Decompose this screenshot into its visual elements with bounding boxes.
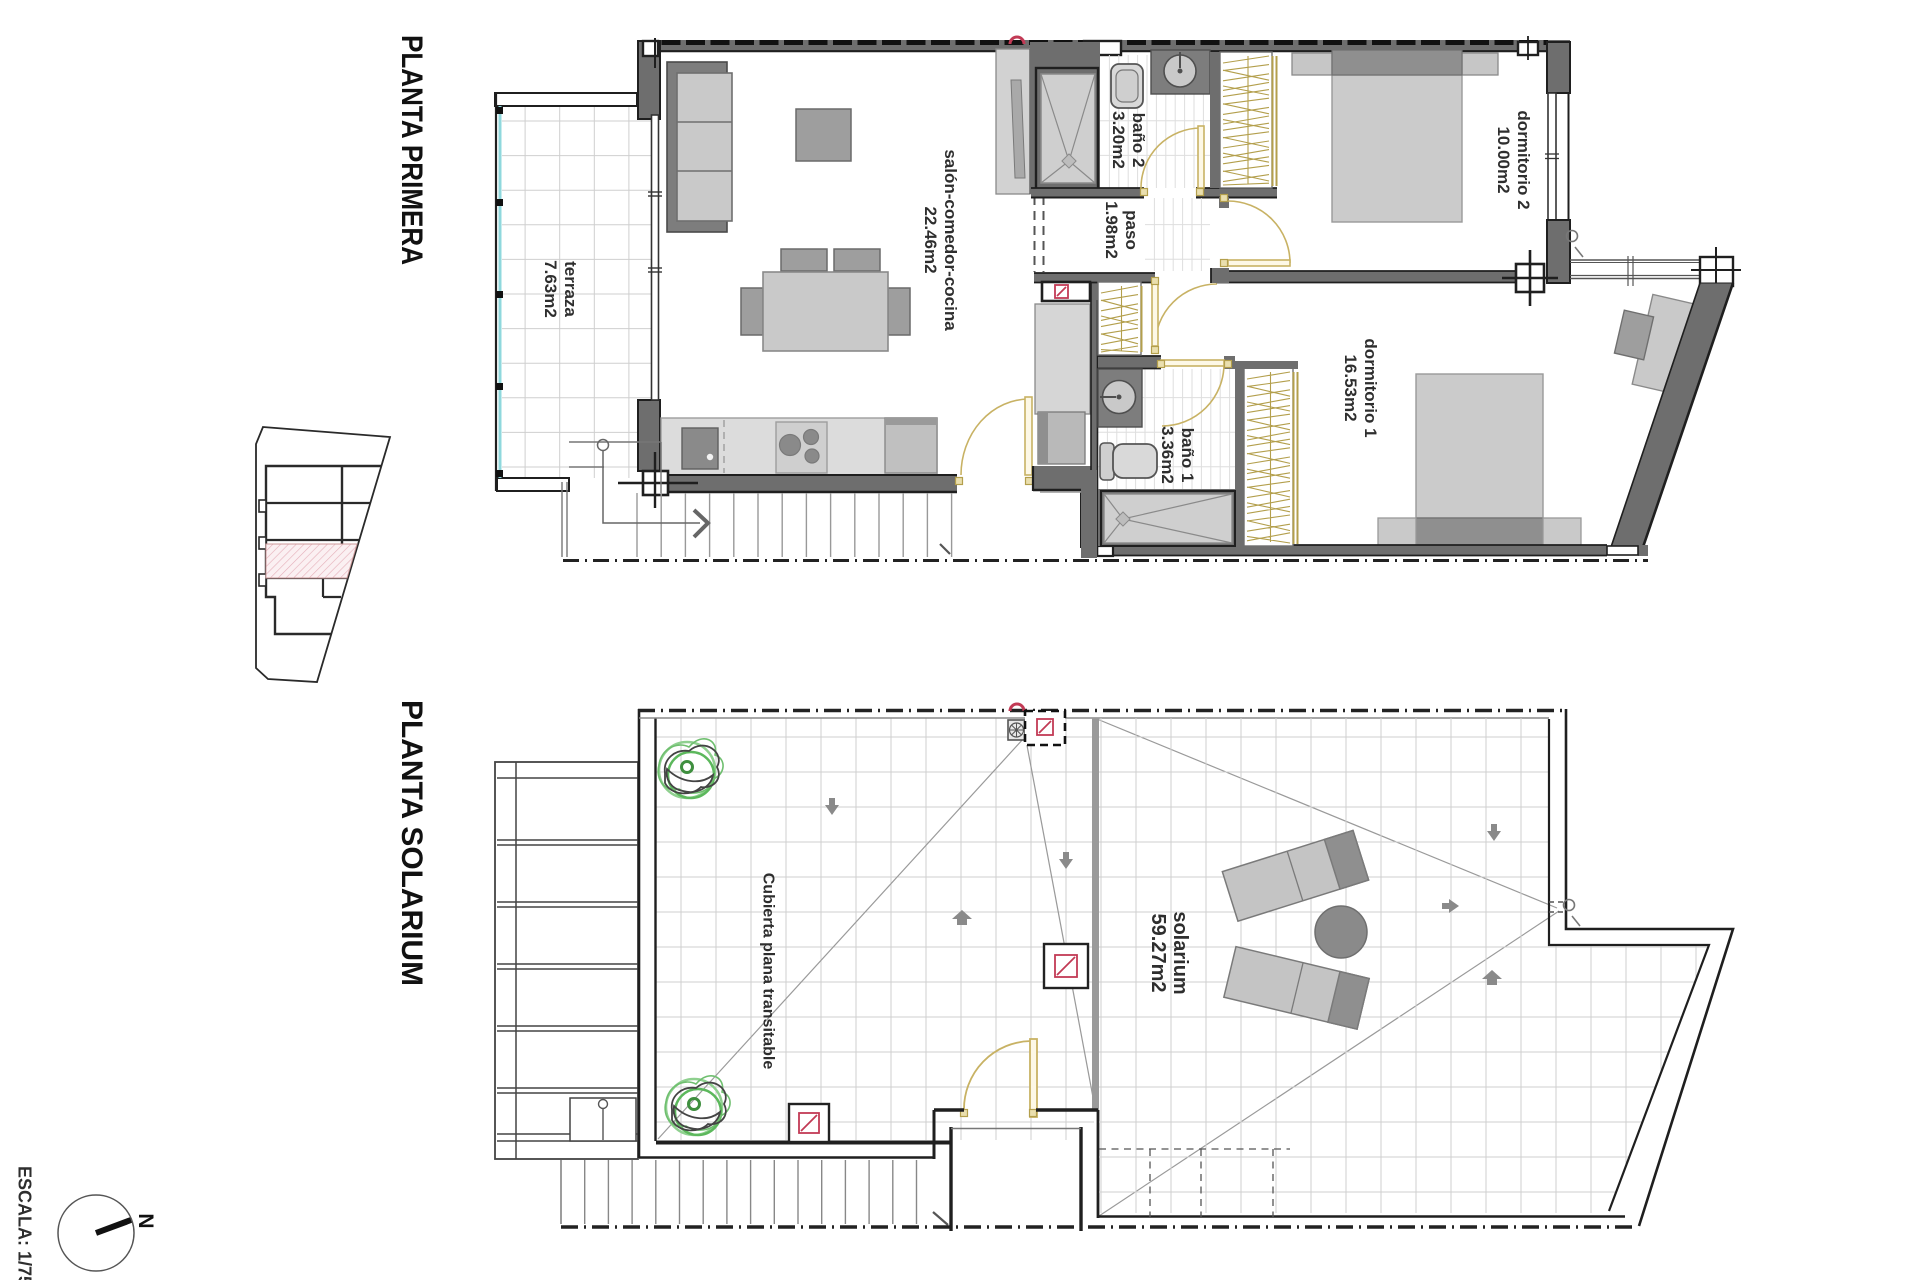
svg-text:N: N [134,1213,157,1228]
svg-text:terraza: terraza [561,261,580,317]
svg-text:salón-comedor-cocina: salón-comedor-cocina [941,149,960,331]
svg-text:16.53m2: 16.53m2 [1341,354,1360,421]
svg-text:59.27m2: 59.27m2 [1147,914,1169,993]
svg-text:7.63m2: 7.63m2 [541,260,560,318]
svg-text:1.98m2: 1.98m2 [1102,201,1121,259]
svg-text:22.46m2: 22.46m2 [921,206,940,273]
svg-text:baño 1: baño 1 [1178,428,1197,483]
svg-text:PLANTA SOLARIUM: PLANTA SOLARIUM [395,700,428,986]
svg-text:3.36m2: 3.36m2 [1158,426,1177,484]
svg-text:paso: paso [1122,210,1141,250]
svg-text:baño 2: baño 2 [1129,113,1148,168]
svg-text:solarium: solarium [1169,911,1191,994]
svg-text:dormitorio 2: dormitorio 2 [1514,110,1533,209]
svg-text:PLANTA PRIMERA: PLANTA PRIMERA [395,35,428,265]
svg-text:3.20m2: 3.20m2 [1109,111,1128,169]
svg-text:10.00m2: 10.00m2 [1494,126,1513,193]
svg-text:dormitorio 1: dormitorio 1 [1361,338,1380,437]
svg-text:Cubierta plana transitable: Cubierta plana transitable [759,873,776,1070]
svg-text:ESCALA: 1/75: ESCALA: 1/75 [15,1166,35,1280]
